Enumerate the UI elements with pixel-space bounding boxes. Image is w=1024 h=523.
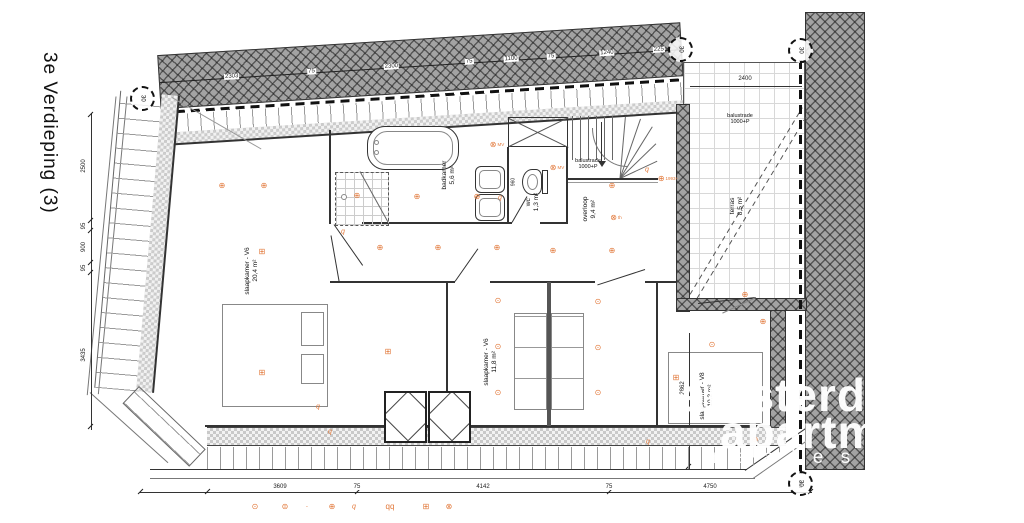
watermark-line3: r e a l e s t a t e [712, 447, 957, 469]
symbol-dot: ⊙ [709, 341, 716, 349]
symbol-sw: q [646, 439, 650, 446]
symbol-sw: q [328, 429, 332, 436]
symbol-spot: ⊗MV [490, 141, 504, 149]
symbol-socket: ⊕ [377, 244, 384, 252]
symbol-socket: ⊕ [414, 193, 421, 201]
symbol-dot: ⊙ [495, 389, 502, 397]
symbol-pend2: ⊜ [282, 503, 289, 511]
section-marker-4: 30 [788, 471, 813, 496]
symbol-ceil: ⊞ [385, 348, 392, 356]
floorplan-sheet: 3e Verdieping (3) 2303 75 2300 75 1100 7… [0, 0, 1024, 523]
roof-window-2 [428, 391, 471, 443]
symbol-dot: ⊙ [495, 343, 502, 351]
symbol-socket: ⊕ [494, 244, 501, 252]
section-marker-3: 30 [788, 38, 813, 63]
symbol-dot: ⊙ [595, 389, 602, 397]
symbol-socket: ⊕ [435, 244, 442, 252]
symbol-sw: q [352, 504, 356, 511]
symbol-spot: ⊗ [446, 503, 453, 511]
symbol-ceil: ⊞ [259, 248, 266, 256]
symbol-socket: ⊕ [760, 318, 767, 326]
symbol-socket: ⊕ [609, 247, 616, 255]
symbol-sw: q [645, 167, 649, 174]
symbol-sw: q [498, 195, 502, 202]
symbol-socket: ⊕ [742, 291, 749, 299]
symbol-socket: ⊕ [329, 503, 336, 511]
symbol-spot: ⊗th [610, 214, 621, 222]
symbol-sw2: qq [386, 503, 395, 511]
symbol-ceil: ⊞ [259, 369, 266, 377]
symbol-dot: ⊙ [495, 297, 502, 305]
section-marker-1: 30 [130, 86, 155, 111]
symbol-dot: ⊙ [595, 344, 602, 352]
symbol-sw: q [316, 404, 320, 411]
section-marker-2: 30 [668, 37, 693, 62]
symbol-spot: ⊗MV [550, 164, 564, 172]
symbol-socket: ⊕ [474, 193, 481, 201]
symbol-ceil: ⊞ [423, 503, 430, 511]
symbol-socket: ⊕1993+ [658, 175, 678, 183]
symbol-socket: ⊕ [219, 182, 226, 190]
symbol-pend: ⊙ [252, 503, 259, 511]
symbol-socket: ⊕ [550, 247, 557, 255]
bottom-gutter-strip [207, 427, 786, 446]
symbol-ldot: · [306, 503, 309, 511]
roof-window-1 [384, 391, 427, 443]
bottom-eave-strip [207, 447, 790, 469]
symbol-dot: ⊙ [595, 298, 602, 306]
symbol-socket: ⊕ [609, 182, 616, 190]
symbol-socket: ⊕ [354, 192, 361, 200]
symbol-ceil: ⊞ [673, 374, 680, 382]
symbol-sw: q [341, 229, 345, 236]
symbol-socket: ⊕ [261, 182, 268, 190]
